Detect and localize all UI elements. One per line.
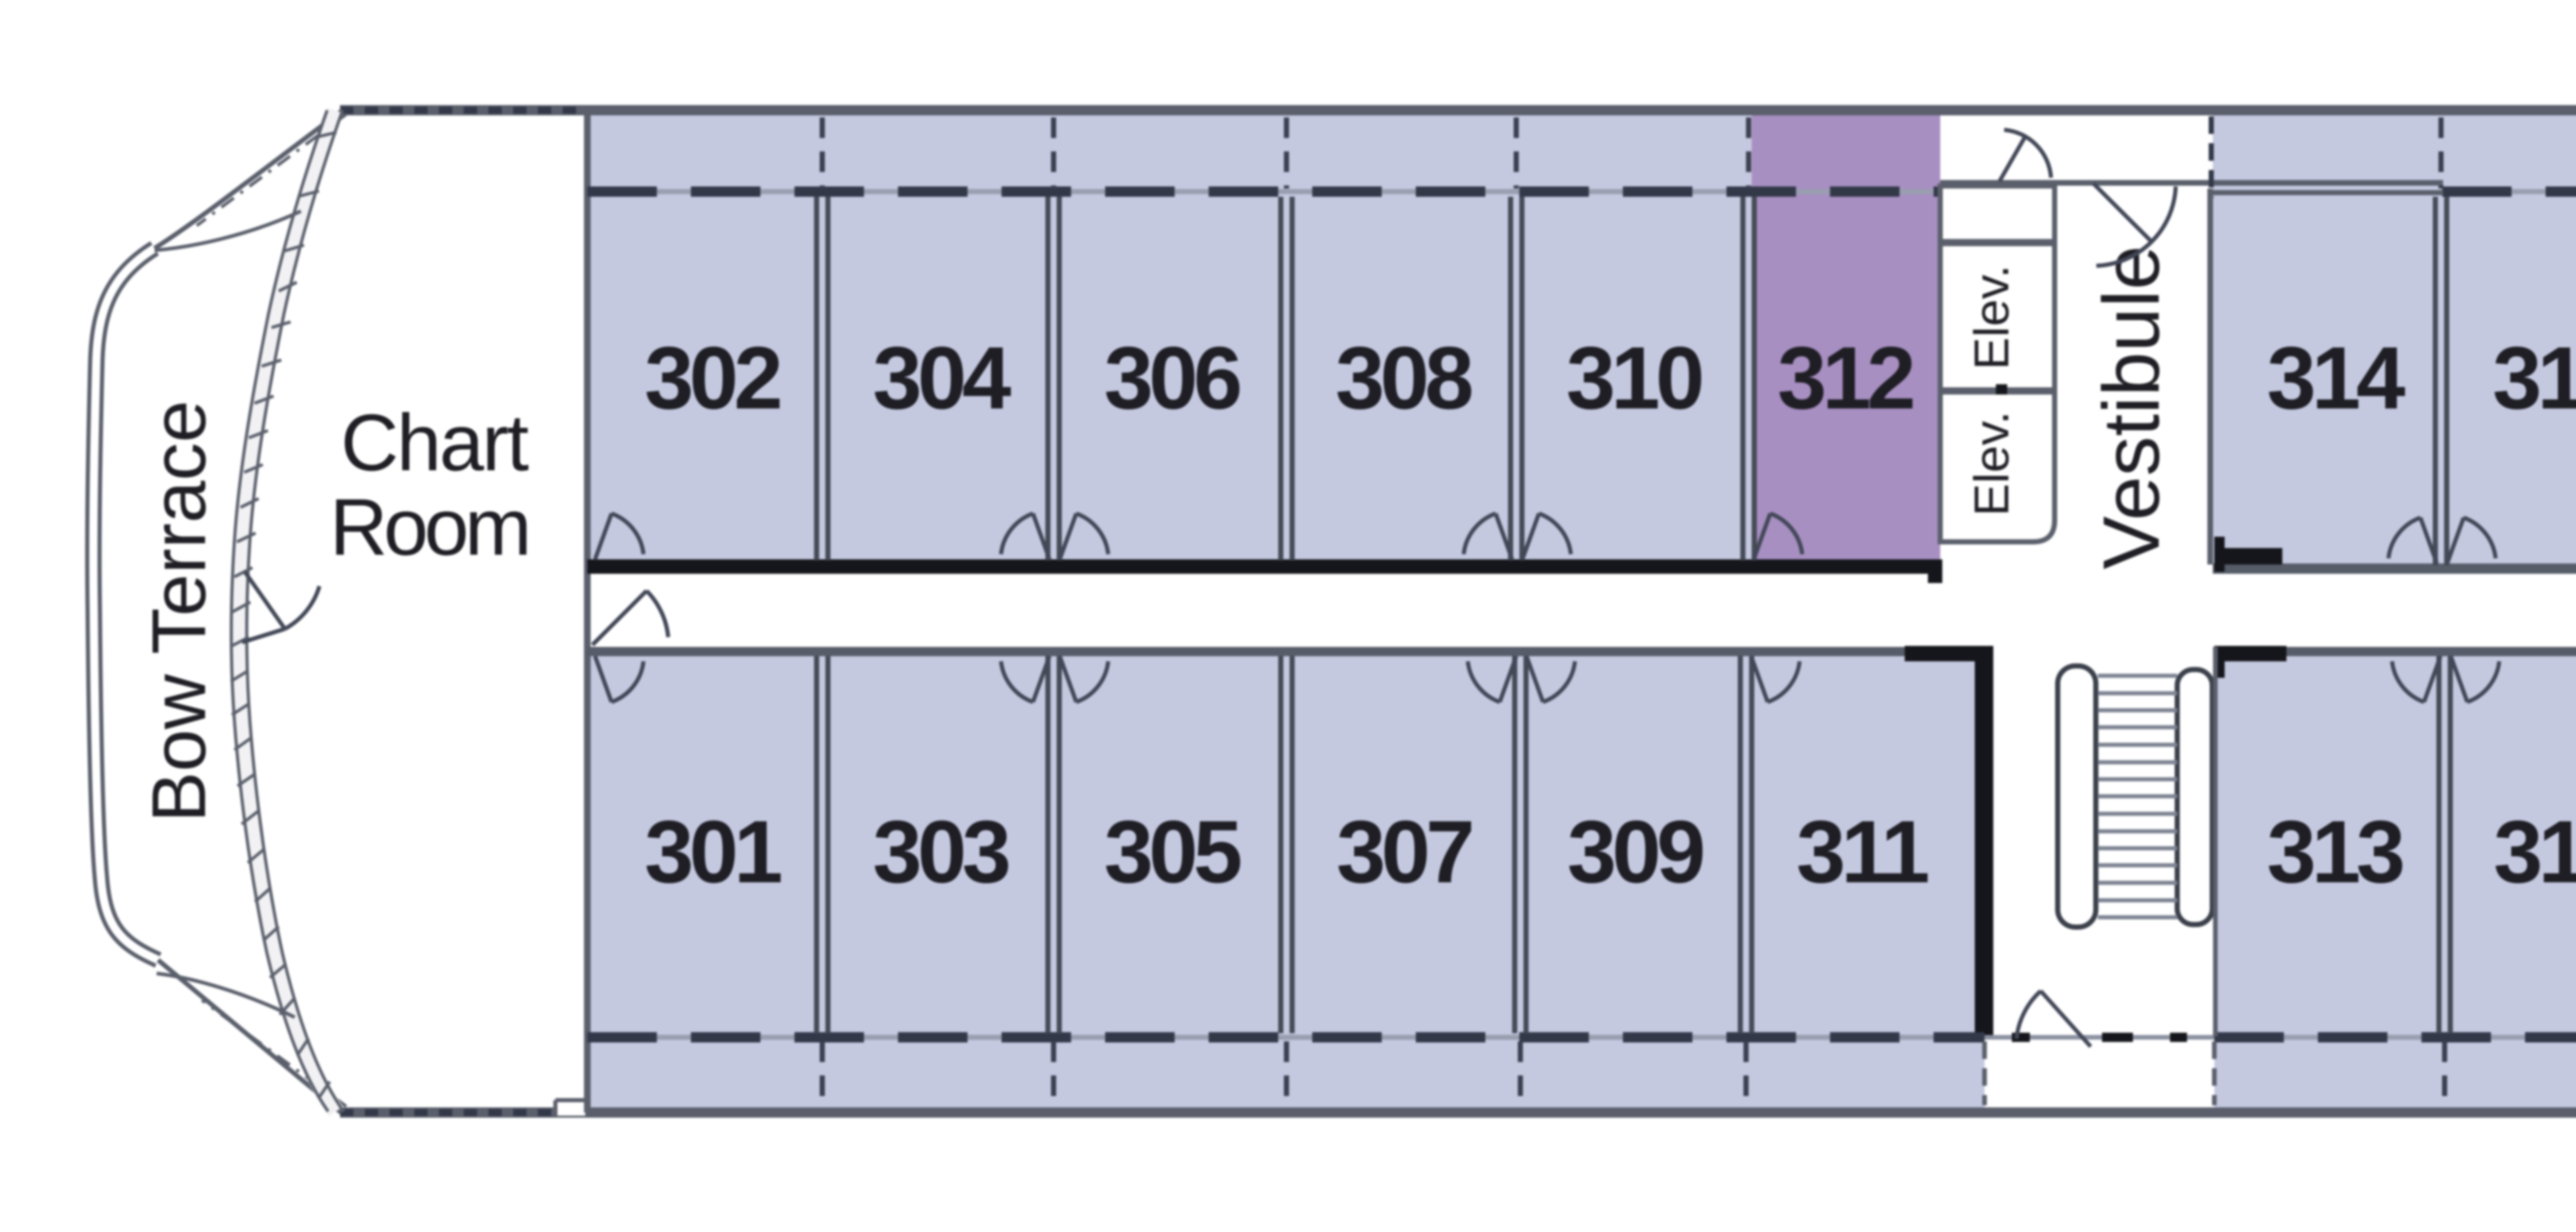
svg-text:310: 310 (1566, 329, 1701, 427)
svg-text:307: 307 (1336, 802, 1471, 901)
svg-text:Elev.: Elev. (1964, 265, 2019, 370)
svg-text:301: 301 (645, 802, 781, 901)
svg-text:305: 305 (1104, 802, 1240, 901)
svg-text:Room: Room (330, 483, 528, 572)
svg-text:315: 315 (2494, 802, 2576, 901)
svg-text:Vestibule: Vestibule (2087, 245, 2176, 569)
svg-text:313: 313 (2267, 802, 2402, 901)
svg-text:316: 316 (2493, 329, 2576, 427)
svg-text:314: 314 (2267, 329, 2405, 427)
svg-text:302: 302 (645, 329, 779, 427)
svg-text:311: 311 (1797, 802, 1928, 901)
svg-text:308: 308 (1335, 329, 1471, 427)
svg-text:303: 303 (873, 802, 1008, 901)
svg-text:309: 309 (1567, 802, 1703, 901)
svg-text:Chart: Chart (341, 398, 529, 488)
svg-text:Elev.: Elev. (1964, 411, 2019, 516)
svg-text:306: 306 (1104, 329, 1240, 427)
svg-text:Bow Terrace: Bow Terrace (137, 400, 222, 823)
svg-text:312: 312 (1777, 329, 1912, 427)
svg-text:304: 304 (873, 329, 1011, 427)
